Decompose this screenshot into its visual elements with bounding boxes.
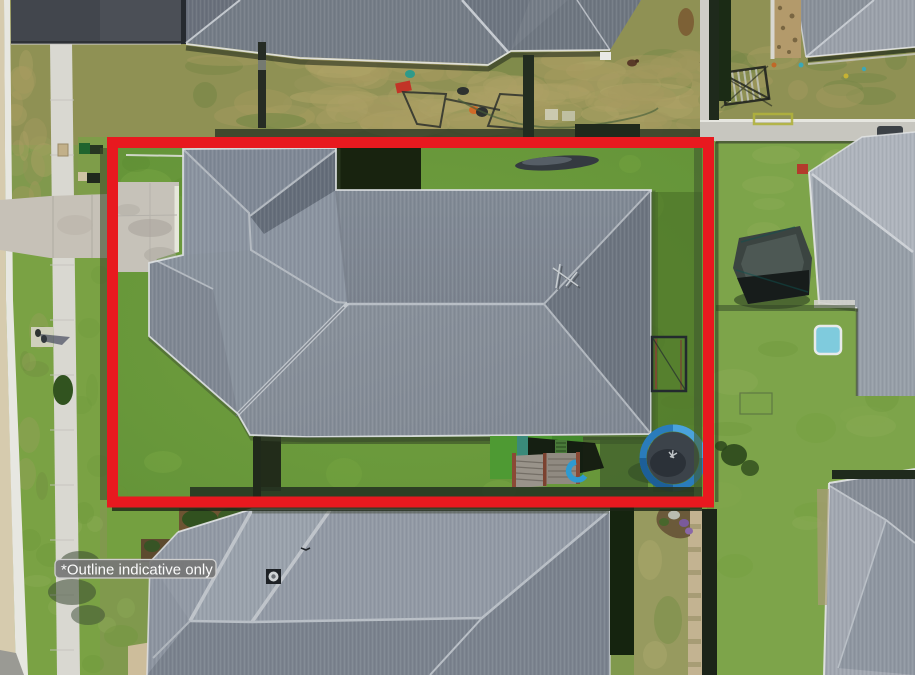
svg-text:*Outline indicative only: *Outline indicative only [61, 562, 213, 579]
